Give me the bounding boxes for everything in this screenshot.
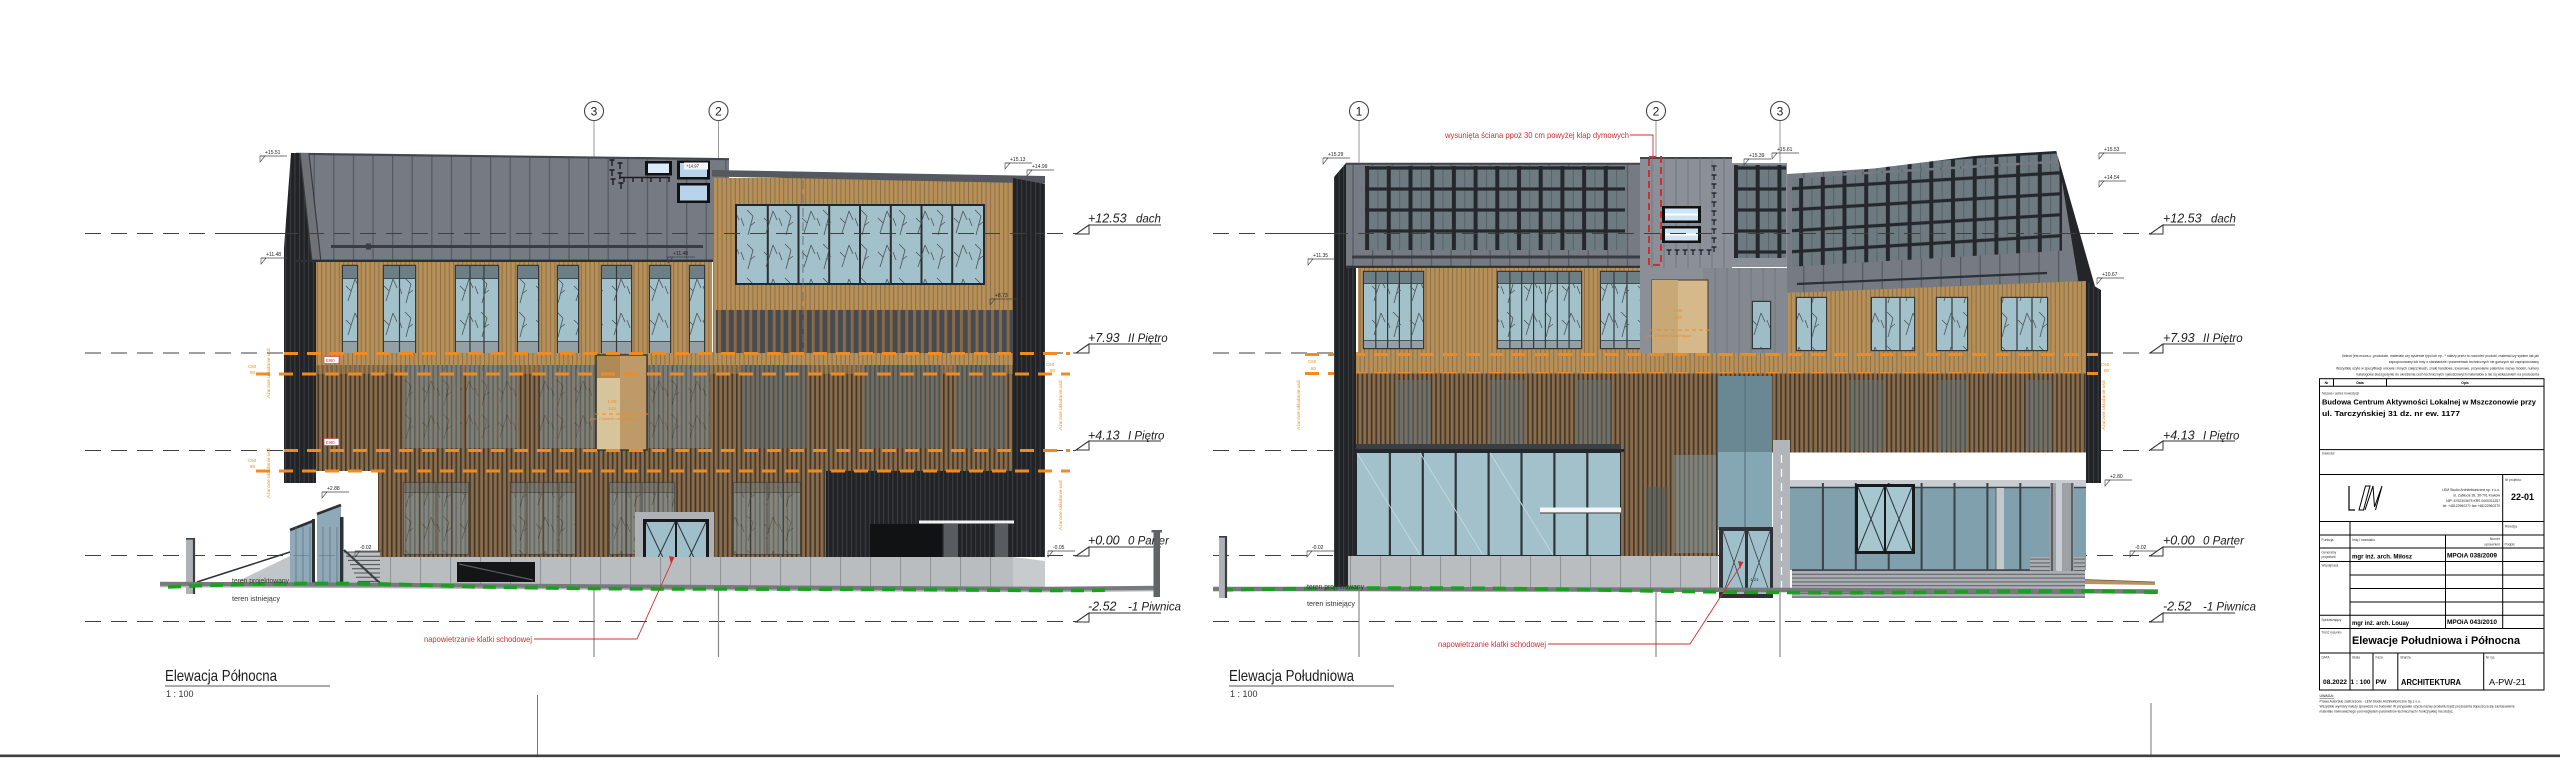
svg-text:Imię i nazwisko: Imię i nazwisko bbox=[2352, 538, 2375, 542]
svg-text:1:80: 1:80 bbox=[1674, 308, 1683, 313]
svg-text:I Piętro: I Piętro bbox=[2203, 431, 2240, 443]
svg-text:wysunięta ściana ppoż 30 cm p: wysunięta ściana ppoż 30 cm powyżej klap… bbox=[1444, 131, 1629, 140]
svg-text:+4.13: +4.13 bbox=[1088, 429, 1120, 443]
svg-text:teren istniejący: teren istniejący bbox=[1307, 599, 1355, 608]
svg-text:mgr inż. arch. Louay: mgr inż. arch. Louay bbox=[2352, 620, 2409, 627]
svg-text:Faza: Faza bbox=[2376, 656, 2383, 660]
svg-text:Rewizja: Rewizja bbox=[2505, 525, 2517, 529]
svg-text:EI60: EI60 bbox=[326, 358, 335, 363]
svg-text:Elewacje Południowa i Północna: Elewacje Południowa i Północna bbox=[2352, 635, 2521, 647]
svg-text:2: 2 bbox=[715, 105, 722, 119]
svg-text:poz. 2 ścianki oddymiające: poz. 2 ścianki oddymiające bbox=[590, 416, 639, 421]
svg-text:+15.39: +15.39 bbox=[1749, 153, 1765, 159]
svg-text:C60: C60 bbox=[248, 458, 257, 463]
svg-text:+15.53: +15.53 bbox=[2104, 147, 2120, 153]
svg-text:+15.61: +15.61 bbox=[1777, 147, 1793, 153]
svg-text:Branża: Branża bbox=[2401, 656, 2411, 660]
svg-text:1 : 100: 1 : 100 bbox=[2351, 679, 2371, 686]
svg-text:uprawnień: uprawnień bbox=[2484, 543, 2500, 547]
svg-text:-1.21: -1.21 bbox=[1749, 577, 1759, 582]
svg-text:Nazwa i adres inwestycji: Nazwa i adres inwestycji bbox=[2322, 392, 2359, 396]
svg-text:1 : 100: 1 : 100 bbox=[166, 689, 194, 699]
svg-text:dach: dach bbox=[1136, 214, 1161, 226]
svg-text:Funkcja: Funkcja bbox=[2322, 538, 2334, 542]
svg-text:-0.02: -0.02 bbox=[1312, 545, 1324, 551]
svg-text:+10.67: +10.67 bbox=[2102, 272, 2118, 278]
svg-text:+11.35: +11.35 bbox=[1313, 253, 1328, 259]
svg-text:DATA: DATA bbox=[2322, 656, 2331, 660]
svg-text:C60: C60 bbox=[1046, 362, 1055, 367]
svg-text:Ażurowe układanie usd: Ażurowe układanie usd bbox=[1296, 380, 1302, 430]
svg-text:Skala: Skala bbox=[2352, 656, 2360, 660]
svg-text:NIP: 6762303675 KRS 0000311257: NIP: 6762303675 KRS 0000311257 bbox=[2446, 499, 2500, 503]
svg-text:PW: PW bbox=[2376, 679, 2388, 686]
svg-text:+11.48: +11.48 bbox=[266, 252, 281, 258]
svg-text:ul. Zabłocie 39, 30-701 Kraków: ul. Zabłocie 39, 30-701 Kraków bbox=[2453, 493, 2500, 497]
svg-text:+0.00: +0.00 bbox=[1088, 534, 1120, 548]
svg-text:+12.53: +12.53 bbox=[1088, 212, 1127, 226]
svg-text:2: 2 bbox=[1653, 105, 1660, 119]
svg-text:0 Parter: 0 Parter bbox=[2203, 536, 2245, 548]
svg-text:EI60: EI60 bbox=[326, 440, 335, 445]
svg-text:Wszystkie wymiary należy spraw: Wszystkie wymiary należy sprawdzić na bu… bbox=[2320, 705, 2515, 709]
svg-text:Podpis: Podpis bbox=[2505, 543, 2516, 547]
svg-text:Ażurowe układanie usd: Ażurowe układanie usd bbox=[1058, 480, 1064, 530]
svg-text:UWAGA:: UWAGA: bbox=[2320, 694, 2334, 698]
svg-text:+4.13: +4.13 bbox=[2163, 429, 2195, 443]
svg-text:80: 80 bbox=[250, 464, 256, 469]
svg-text:+15.29: +15.29 bbox=[1328, 152, 1344, 158]
svg-text:+14.97: +14.97 bbox=[686, 164, 700, 169]
svg-text:+8.73: +8.73 bbox=[995, 293, 1008, 299]
svg-text:Elewacja Północna: Elewacja Północna bbox=[165, 668, 277, 685]
svg-text:1 : 100: 1 : 100 bbox=[1230, 689, 1258, 699]
svg-text:80: 80 bbox=[1050, 368, 1056, 373]
svg-text:+15.13: +15.13 bbox=[1010, 157, 1026, 163]
svg-text:Nr projektu:: Nr projektu: bbox=[2505, 478, 2522, 482]
svg-text:ARCHITEKTURA: ARCHITEKTURA bbox=[2401, 678, 2461, 687]
svg-text:80: 80 bbox=[250, 370, 256, 375]
svg-text:+14.99: +14.99 bbox=[1032, 164, 1048, 170]
svg-text:80: 80 bbox=[2104, 368, 2110, 373]
svg-text:Ażurowe układanie usd: Ażurowe układanie usd bbox=[266, 348, 272, 398]
svg-text:Inwestor: Inwestor bbox=[2322, 452, 2336, 456]
svg-text:0 Parter: 0 Parter bbox=[1128, 536, 1170, 548]
svg-text:Elewacja Południowa: Elewacja Południowa bbox=[1229, 668, 1354, 685]
svg-text:1:80: 1:80 bbox=[608, 399, 617, 404]
svg-text:-2.52: -2.52 bbox=[1088, 600, 1117, 614]
svg-text:tel: +48122960271 fax:+4812296: tel: +48122960271 fax:+48122960270 bbox=[2443, 504, 2500, 508]
svg-text:C60: C60 bbox=[248, 364, 257, 369]
svg-text:Ilekroć jest mowa o „produkcie: Ilekroć jest mowa o „produkcie, material… bbox=[2342, 354, 2539, 358]
svg-text:poz. 2 ścianki oddymiające: poz. 2 ścianki oddymiające bbox=[1646, 334, 1691, 338]
svg-text:II Piętro: II Piętro bbox=[1128, 333, 1168, 345]
svg-text:teren projektowany: teren projektowany bbox=[232, 576, 289, 585]
svg-text:Numer: Numer bbox=[2490, 537, 2501, 541]
svg-text:ul. Tarczyńskiej 31 dz. nr ew.: ul. Tarczyńskiej 31 dz. nr ew. 1177 bbox=[2322, 409, 2460, 418]
svg-text:Wszystkie użyte w specyfikacji: Wszystkie użyte w specyfikacji umowie i … bbox=[2336, 366, 2539, 370]
svg-text:projektant: projektant bbox=[2322, 555, 2336, 559]
svg-text:Treść rysunku: Treść rysunku bbox=[2322, 631, 2342, 635]
svg-text:3: 3 bbox=[591, 105, 598, 119]
svg-text:1: 1 bbox=[1356, 105, 1363, 119]
svg-text:Sprawdzający: Sprawdzający bbox=[2322, 618, 2342, 622]
svg-text:-1 Piwnica: -1 Piwnica bbox=[1128, 602, 1181, 614]
svg-text:80: 80 bbox=[1311, 366, 1317, 371]
svg-text:C60: C60 bbox=[1308, 359, 1317, 364]
svg-text:A-PW-21: A-PW-21 bbox=[2489, 678, 2527, 687]
svg-text:-0.05: -0.05 bbox=[1053, 545, 1065, 551]
svg-text:katalogowe służą jedynie do ok: katalogowe służą jedynie do określenia c… bbox=[2357, 373, 2540, 377]
svg-text:3: 3 bbox=[1777, 105, 1784, 119]
svg-text:MPOiA 038/2009: MPOiA 038/2009 bbox=[2447, 553, 2497, 560]
svg-text:teren istniejący: teren istniejący bbox=[232, 594, 280, 603]
svg-text:Współpraca: Współpraca bbox=[2322, 564, 2339, 568]
svg-text:+2.80: +2.80 bbox=[2110, 474, 2123, 480]
svg-text:Opis: Opis bbox=[2461, 381, 2469, 385]
svg-text:+15.51: +15.51 bbox=[265, 150, 281, 156]
svg-text:+0.00: +0.00 bbox=[2163, 534, 2195, 548]
svg-text:-1 Piwnica: -1 Piwnica bbox=[2203, 602, 2256, 614]
svg-text:Budowa Centrum Aktywności Loka: Budowa Centrum Aktywności Lokalnej w Msz… bbox=[2322, 398, 2537, 407]
svg-text:C60: C60 bbox=[2101, 362, 2110, 367]
svg-text:napowietrzanie klatki schodowe: napowietrzanie klatki schodowej bbox=[1438, 640, 1546, 649]
svg-text:22-01: 22-01 bbox=[2511, 492, 2535, 503]
svg-text:+11.48: +11.48 bbox=[673, 251, 688, 257]
svg-text:zaproponowany lub inny o stand: zaproponowany lub inny o standardzie i p… bbox=[2389, 360, 2540, 364]
svg-text:mgr inż. arch. Miłosz: mgr inż. arch. Miłosz bbox=[2352, 554, 2413, 561]
svg-text:08.2022: 08.2022 bbox=[2323, 679, 2347, 686]
svg-text:teren projektowany: teren projektowany bbox=[1307, 582, 1364, 591]
svg-text:+12.53: +12.53 bbox=[2163, 212, 2202, 226]
svg-text:Data: Data bbox=[2356, 381, 2363, 385]
svg-text:-0.02: -0.02 bbox=[360, 545, 372, 551]
svg-text:-0.02: -0.02 bbox=[2135, 545, 2147, 551]
svg-text:dach: dach bbox=[2211, 214, 2236, 226]
svg-text:Ażurowe układanie usd: Ażurowe układanie usd bbox=[1058, 380, 1064, 430]
svg-text:materiału równoważnego pod wzg: materiału równoważnego pod względem para… bbox=[2320, 710, 2454, 714]
svg-text:Nr rys.: Nr rys. bbox=[2486, 656, 2495, 660]
svg-text:MPOiA 043/2010: MPOiA 043/2010 bbox=[2447, 619, 2497, 626]
svg-text:II Piętro: II Piętro bbox=[2203, 333, 2243, 345]
svg-text:Ażurowe układanie usd: Ażurowe układanie usd bbox=[266, 448, 272, 498]
svg-text:I Piętro: I Piętro bbox=[1128, 431, 1165, 443]
svg-text:+2.88: +2.88 bbox=[327, 486, 340, 492]
svg-text:143: 143 bbox=[1674, 315, 1682, 320]
svg-text:LEM Studio Architektoniczne sp: LEM Studio Architektoniczne sp. z o.o. bbox=[2442, 488, 2500, 492]
svg-text:+14.54: +14.54 bbox=[2104, 175, 2120, 181]
svg-text:Prawa Autorskie zastrzeżone -: Prawa Autorskie zastrzeżone - LEM Studio… bbox=[2320, 700, 2421, 704]
svg-text:napowietrzanie klatki schodowe: napowietrzanie klatki schodowej bbox=[424, 635, 532, 644]
svg-text:-2.52: -2.52 bbox=[2163, 600, 2192, 614]
svg-text:+7.93: +7.93 bbox=[1088, 331, 1120, 345]
svg-text:Generalny: Generalny bbox=[2322, 551, 2337, 555]
svg-text:143: 143 bbox=[608, 406, 616, 411]
svg-text:+7.93: +7.93 bbox=[2163, 331, 2195, 345]
svg-text:Ażurowe układanie usd: Ażurowe układanie usd bbox=[2101, 380, 2107, 430]
